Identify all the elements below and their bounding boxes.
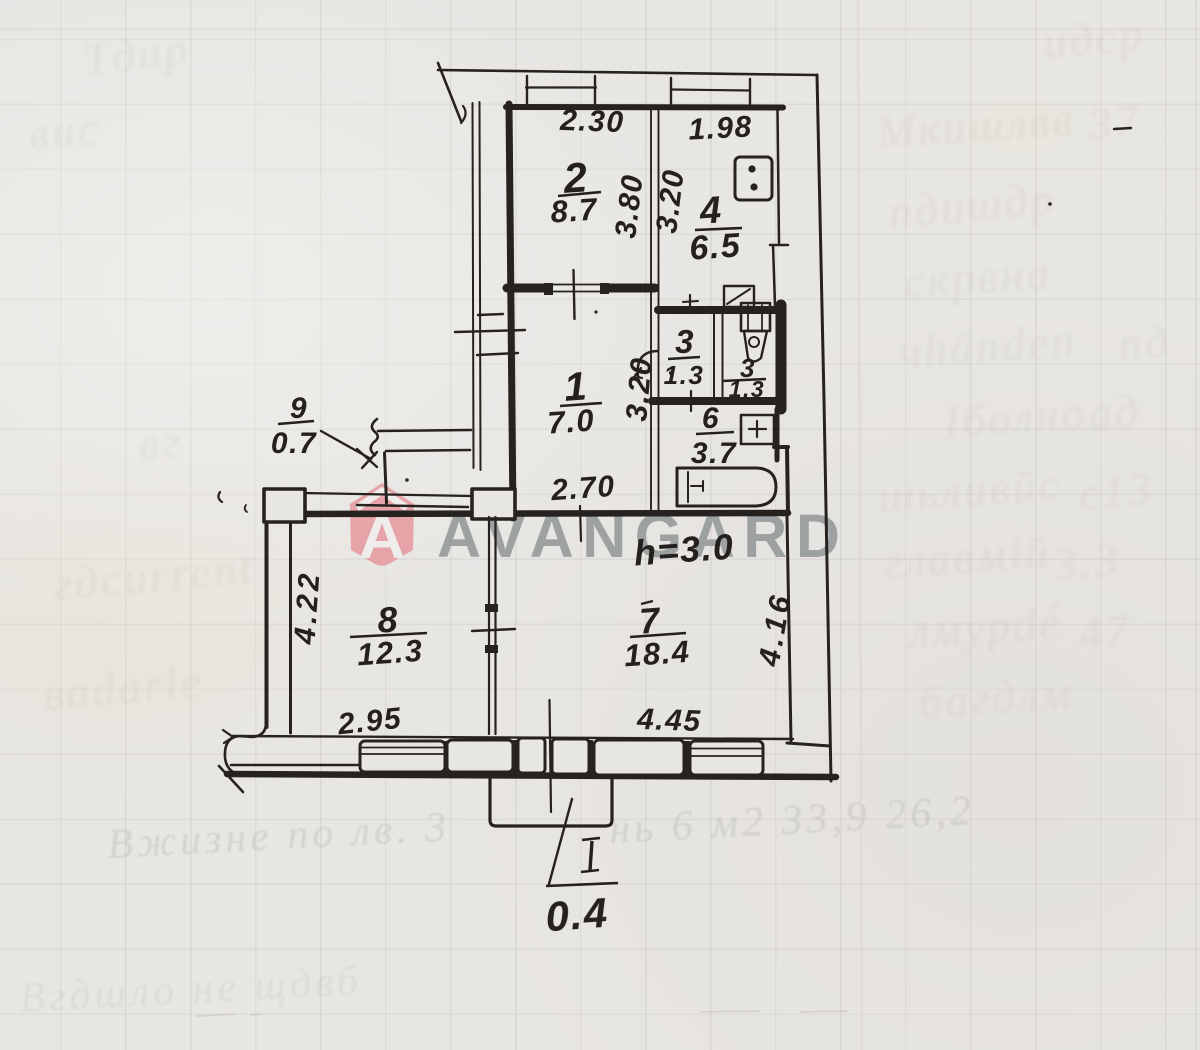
svg-text:0.4: 0.4 — [544, 889, 610, 940]
svg-text:6.5: 6.5 — [688, 226, 742, 268]
svg-text:7.0: 7.0 — [546, 402, 596, 440]
svg-text:Вжизне по лв. 3: Вжизне по лв. 3 — [106, 804, 451, 868]
svg-text:пд: пд — [1116, 315, 1173, 370]
svg-text:шьливйс: шьливйс — [877, 458, 1063, 522]
svg-text:2.95: 2.95 — [335, 702, 403, 742]
svg-text:пдишдр: пдишдр — [886, 172, 1058, 237]
svg-text:18.4: 18.4 — [623, 634, 692, 674]
svg-text:ад: ад — [1086, 385, 1143, 440]
svg-text:3.3: 3.3 — [1050, 533, 1122, 590]
svg-text:47: 47 — [1076, 605, 1132, 660]
svg-text:3: 3 — [675, 323, 695, 360]
svg-text:Вгдшло не щдвб: Вгдшло не щдвб — [18, 958, 363, 1022]
svg-text:вис: вис — [26, 103, 103, 160]
svg-text:багдлм: багдлм — [917, 666, 1075, 728]
svg-text:0.7: 0.7 — [271, 427, 317, 460]
svg-text:скрвна: скрвна — [902, 247, 1054, 308]
svg-text:Мкишлвв: Мкишлвв — [874, 93, 1077, 158]
svg-text:гдcurrent: гдcurrent — [51, 542, 257, 610]
svg-text:лмурdé: лмурdé — [904, 596, 1064, 658]
svg-text:3.7: 3.7 — [691, 437, 737, 470]
svg-text:1.98: 1.98 — [687, 110, 753, 146]
svg-text:главмій: главмій — [882, 525, 1052, 588]
svg-text:вг: вг — [136, 415, 184, 470]
svg-text:h=3.0: h=3.0 — [633, 526, 736, 574]
svg-text:6: 6 — [702, 402, 720, 435]
svg-text:1.3: 1.3 — [729, 376, 765, 402]
svg-text:4.16: 4.16 — [753, 590, 799, 670]
svg-text:4.45: 4.45 — [636, 703, 703, 738]
svg-text:2.70: 2.70 — [549, 470, 617, 507]
svg-text:Іболно: Іболно — [941, 387, 1089, 448]
svg-text:4: 4 — [697, 189, 724, 233]
svg-text:1.3: 1.3 — [664, 360, 705, 390]
svg-text:3.80: 3.80 — [609, 172, 650, 240]
svg-text:3.20: 3.20 — [650, 167, 691, 235]
svg-text:чhänden: чhänden — [897, 315, 1078, 378]
svg-text:8.7: 8.7 — [549, 191, 599, 229]
svg-text:2.30: 2.30 — [559, 104, 626, 139]
svg-text:37: 37 — [1085, 95, 1142, 150]
svg-text:Тдир: Тдир — [81, 23, 193, 85]
svg-text:с13: с13 — [1076, 463, 1156, 520]
svg-text:12.3: 12.3 — [356, 633, 425, 673]
svg-text:ваdarle: ваdarle — [41, 655, 206, 720]
svg-text:нь 6 м2 33,9 26,2: нь 6 м2 33,9 26,2 — [608, 788, 976, 853]
svg-text:идср: идср — [1041, 8, 1147, 68]
svg-text:4.22: 4.22 — [288, 569, 326, 647]
svg-text:9: 9 — [290, 392, 308, 425]
svg-text:3.20: 3.20 — [620, 356, 658, 423]
